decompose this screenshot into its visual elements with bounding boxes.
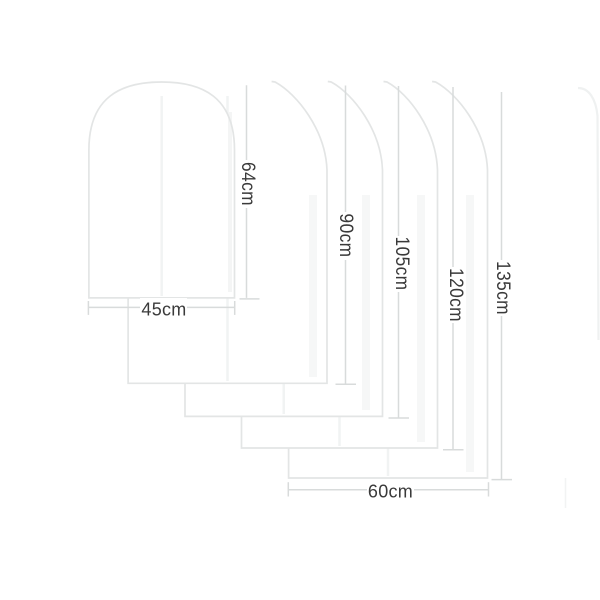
svg-text:90cm: 90cm [336, 214, 357, 258]
svg-text:64cm: 64cm [238, 162, 259, 206]
svg-text:45cm: 45cm [141, 299, 186, 319]
svg-text:135cm: 135cm [493, 261, 514, 315]
svg-text:60cm: 60cm [368, 482, 413, 502]
svg-text:105cm: 105cm [392, 237, 413, 291]
svg-text:120cm: 120cm [446, 268, 467, 322]
